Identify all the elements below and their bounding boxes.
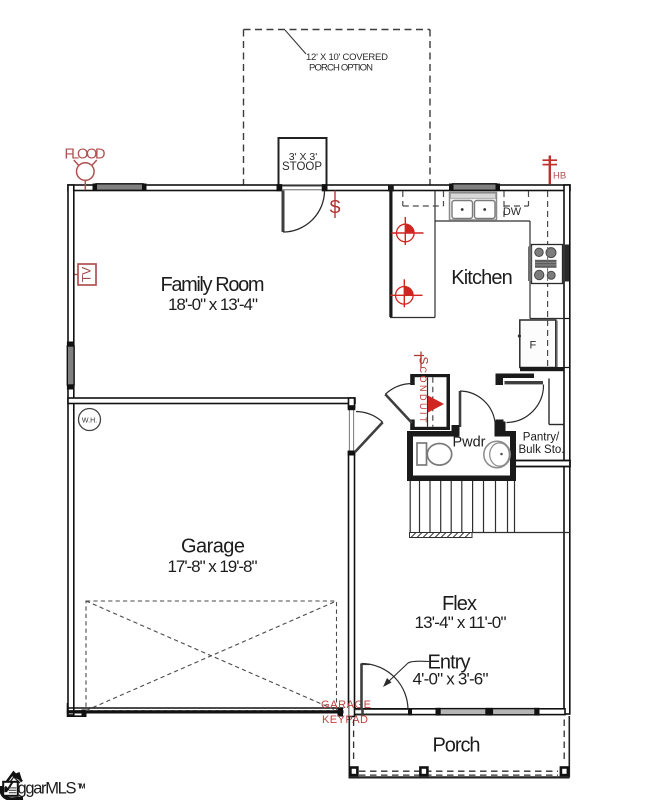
svg-text:Pantry/: Pantry/ — [523, 432, 560, 444]
svg-text:S: S — [329, 197, 341, 217]
svg-text:Garage: Garage — [181, 536, 245, 558]
svg-text:FLOOD: FLOOD — [65, 147, 106, 163]
svg-text:STOOP: STOOP — [282, 161, 322, 173]
svg-text:W.H.: W.H. — [82, 418, 97, 425]
svg-text:18'-0" x 13'-4": 18'-0" x 13'-4" — [168, 295, 258, 314]
svg-text:Family Room: Family Room — [161, 274, 265, 296]
svg-text:Pwdr: Pwdr — [452, 435, 485, 451]
svg-text:Porch: Porch — [433, 735, 481, 757]
svg-text:Bulk Sto.: Bulk Sto. — [518, 444, 564, 456]
svg-text:TV: TV — [80, 267, 94, 282]
svg-text:17'-8" x 19'-8": 17'-8" x 19'-8" — [168, 557, 258, 576]
svg-text:13'-4" x 11'-0": 13'-4" x 11'-0" — [415, 613, 507, 632]
svg-text:Flex: Flex — [442, 593, 477, 615]
svg-text:12' X 10' COVERED: 12' X 10' COVERED — [306, 52, 388, 63]
svg-text:F: F — [530, 340, 537, 352]
svg-text:Kitchen: Kitchen — [451, 267, 513, 289]
svg-text:DW: DW — [503, 206, 522, 218]
svg-text:KEYPAD: KEYPAD — [322, 714, 368, 726]
svg-text:ggarMLS: ggarMLS — [18, 780, 77, 798]
svg-text:PORCH OPTION: PORCH OPTION — [309, 63, 373, 74]
svg-text:4'-0" x 3'-6": 4'-0" x 3'-6" — [413, 670, 489, 689]
svg-text:GARAGE: GARAGE — [321, 699, 371, 711]
svg-text:HB: HB — [553, 171, 566, 182]
svg-text:TM: TM — [78, 784, 86, 791]
svg-text:S: S — [417, 356, 431, 364]
